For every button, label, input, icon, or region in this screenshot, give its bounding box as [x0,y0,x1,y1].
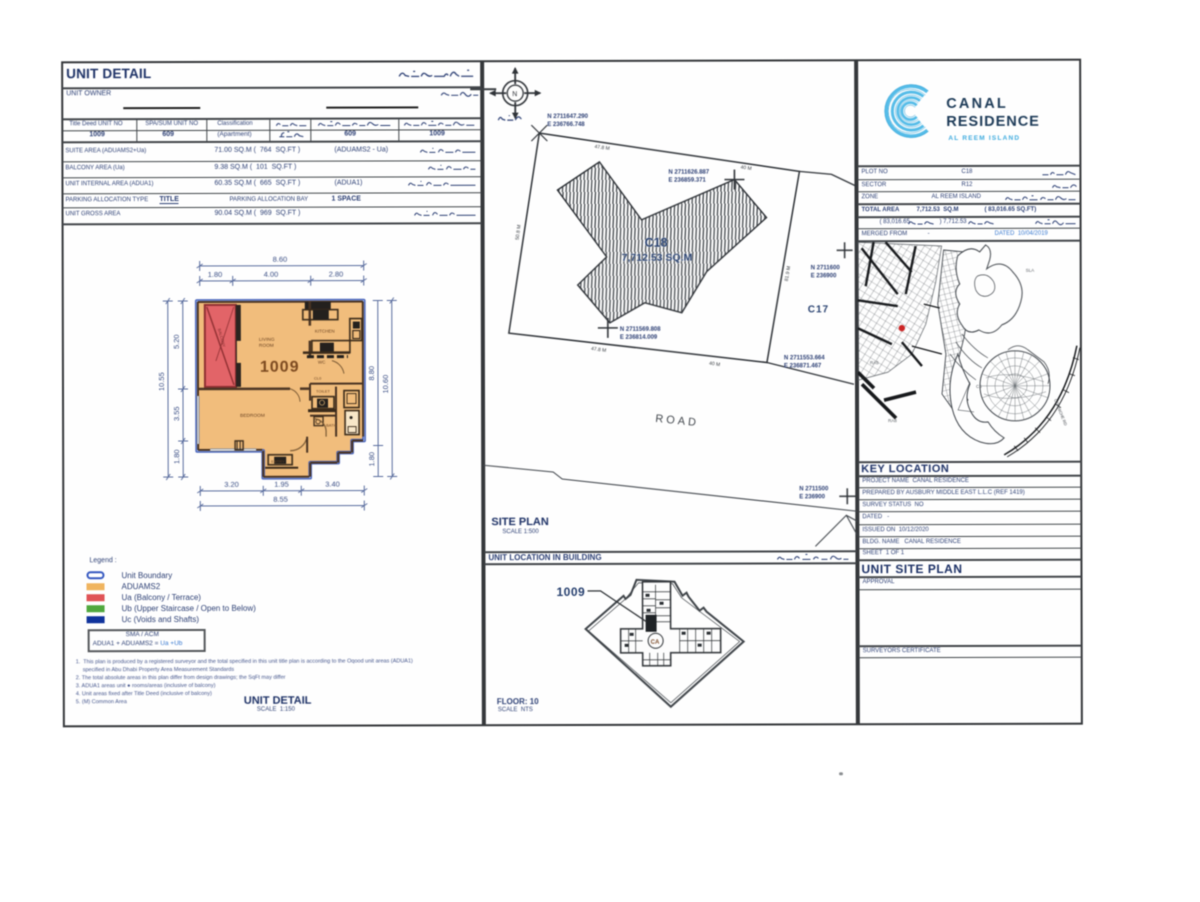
svg-text:AL REEM ISLAND: AL REEM ISLAND [948,135,1020,142]
svg-text:N 2711553.664: N 2711553.664 [784,355,825,361]
svg-text:C18: C18 [645,236,668,250]
svg-text:2.80: 2.80 [329,270,344,279]
svg-text:E 236766.748: E 236766.748 [547,122,585,128]
svg-text:7,712.53 SQ.M: 7,712.53 SQ.M [622,252,693,264]
svg-text:1009: 1009 [260,359,300,376]
svg-text:1.80: 1.80 [172,449,181,464]
svg-text:3.55: 3.55 [172,406,181,421]
svg-text:1009: 1009 [557,585,586,599]
svg-text:3.20: 3.20 [224,480,239,489]
svg-text:40 M: 40 M [740,165,752,172]
svg-text:CANAL: CANAL [946,96,1008,112]
svg-text:N: N [512,91,517,98]
svg-text:RA8: RA8 [888,418,897,423]
svg-text:E 236814.009: E 236814.009 [620,335,658,341]
svg-text:LIVING: LIVING [259,337,275,343]
svg-text:E 236859.371: E 236859.371 [668,178,706,184]
svg-text:TOILET: TOILET [316,389,330,394]
svg-text:RESIDENCE: RESIDENCE [946,114,1040,130]
svg-text:E 236871.467: E 236871.467 [784,363,822,369]
svg-text:CL0: CL0 [314,376,322,381]
svg-text:5.20: 5.20 [172,334,181,349]
svg-text:1.80: 1.80 [367,452,376,467]
svg-text:N 2711569.808: N 2711569.808 [620,327,661,333]
svg-text:C17: C17 [808,304,829,315]
svg-text:E 236900: E 236900 [799,494,825,500]
svg-text:N 2711600: N 2711600 [811,265,841,271]
svg-text:ROAD: ROAD [655,413,700,429]
svg-text:8.55: 8.55 [273,495,288,504]
svg-text:N 2711647.290: N 2711647.290 [547,114,588,120]
svg-text:SLA: SLA [1026,268,1035,273]
svg-text:KITCHEN: KITCHEN [315,329,335,334]
svg-text:C6: C6 [976,384,982,389]
svg-text:BEDROOM: BEDROOM [240,413,265,419]
svg-text:47.8 M: 47.8 M [594,144,610,152]
svg-text:81.9 M: 81.9 M [784,266,793,282]
svg-text:ROOM: ROOM [259,343,274,349]
svg-text:10.60: 10.60 [381,375,390,394]
svg-text:8.60: 8.60 [273,255,288,264]
svg-text:ENTRY: ENTRY [271,459,285,464]
svg-text:BATH: BATH [326,423,336,428]
svg-text:E 236900: E 236900 [811,273,837,279]
svg-text:10.55: 10.55 [157,372,166,391]
svg-text:RA5: RA5 [870,360,879,365]
svg-text:1.80: 1.80 [208,270,223,279]
svg-text:1.95: 1.95 [274,480,289,489]
svg-text:WC: WC [318,360,326,365]
svg-text:N 2711500: N 2711500 [799,486,829,492]
svg-text:8.80: 8.80 [367,366,376,381]
svg-text:3.40: 3.40 [325,480,340,489]
svg-text:40 M: 40 M [709,361,721,368]
svg-text:N 2711626.887: N 2711626.887 [668,170,709,176]
svg-text:4.00: 4.00 [264,270,279,279]
svg-text:50.8 M: 50.8 M [515,224,523,240]
svg-text:CA: CA [651,640,660,646]
svg-text:47.8 M: 47.8 M [591,346,607,354]
